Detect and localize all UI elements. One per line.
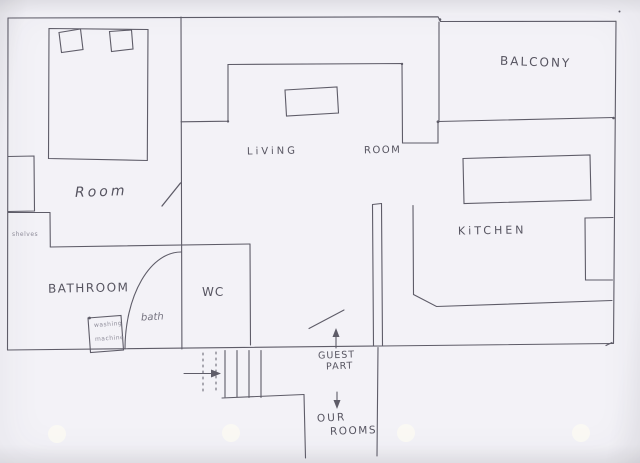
bath-label: bath	[141, 312, 164, 324]
scanned-floor-plan-paper: Room LiViNG ROOM BALCONY KiTCHEN BATHROO…	[0, 0, 640, 463]
our-rooms-arrow	[334, 392, 341, 409]
stairs	[222, 351, 304, 399]
bedroom-door-swing	[162, 183, 181, 206]
our-rooms-label-line2: ROOMS	[330, 425, 377, 438]
entrance-door-swing	[309, 310, 344, 329]
living-room-sofa	[285, 87, 339, 116]
wardrobe	[8, 156, 35, 212]
living-room-label-word1: LiViNG	[247, 147, 298, 158]
floor-plan-drawing	[0, 0, 640, 463]
shelves-label: shelves	[12, 232, 38, 238]
kitchen-appliance	[585, 218, 613, 281]
bathroom-walls	[8, 213, 251, 346]
kitchen-label: KiTCHEN	[458, 224, 527, 237]
kitchen-counter	[413, 206, 612, 307]
bathtub-curve	[125, 252, 182, 349]
bathroom-label: BATHROOM	[48, 281, 130, 295]
balcony-label: BALCONY	[500, 55, 572, 70]
kitchen-partition-wall	[373, 204, 383, 347]
hole-punches	[48, 424, 590, 443]
guest-part-arrow	[333, 328, 340, 348]
our-rooms-label-line1: OUR	[317, 412, 347, 425]
entrance-direction-arrow	[184, 370, 221, 378]
living-room-label-word2: ROOM	[364, 146, 402, 157]
living-room-recess-wall	[181, 63, 439, 143]
pillow-right-icon	[110, 30, 134, 52]
room-label: Room	[75, 184, 128, 201]
kitchen-table	[463, 155, 591, 204]
wc-label: WC	[202, 286, 224, 299]
guest-part-label-line2: PART	[326, 362, 354, 373]
pillow-left-icon	[59, 29, 83, 53]
